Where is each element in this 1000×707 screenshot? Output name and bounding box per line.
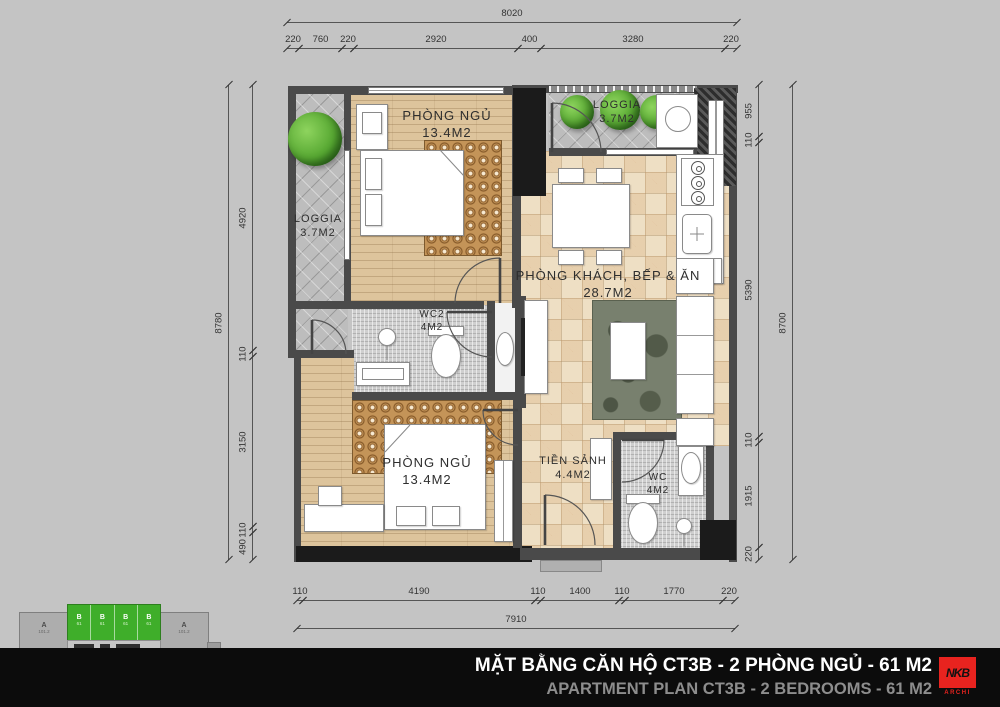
- wall: [294, 301, 484, 309]
- dimension-segment: 220: [758, 548, 759, 560]
- cabinet: [304, 504, 384, 532]
- wall: [352, 392, 522, 400]
- dimension-segment: 4190: [303, 600, 535, 601]
- wall: [513, 398, 522, 548]
- window: [344, 150, 350, 260]
- key-plan-unit-a: A 101.2: [159, 612, 209, 650]
- toilet-icon: [431, 334, 461, 378]
- bedroom2-label: PHÒNG NGỦ 13.4M2: [382, 455, 471, 489]
- sink-icon: [682, 214, 712, 254]
- dimension-segment: 5390: [758, 143, 759, 437]
- sink-icon: [496, 332, 514, 366]
- dim-label: 220: [285, 34, 301, 45]
- dim-label: 110: [614, 586, 629, 597]
- unit-sublabel: 61: [68, 621, 90, 628]
- dimension-segment: 4920: [252, 85, 253, 351]
- plan-title-english: APARTMENT PLAN CT3B - 2 BEDROOMS - 61 M2: [546, 680, 932, 699]
- wall: [700, 520, 736, 560]
- dimension-segment: 1770: [625, 600, 723, 601]
- room-area: 3.7M2: [294, 226, 342, 240]
- wc1-label: WC 4M2: [647, 471, 669, 497]
- plant-icon: [288, 112, 342, 166]
- wall: [487, 301, 495, 400]
- washing-machine-drum: [665, 106, 691, 132]
- dim-label: 4920: [238, 207, 249, 228]
- dim-label: 110: [744, 132, 755, 147]
- pillow: [365, 158, 382, 190]
- dim-label: 1915: [744, 485, 755, 506]
- bath-tray-inner: [362, 368, 404, 380]
- unit-sublabel: 101.2: [160, 629, 208, 635]
- dimension-segment: 220: [725, 48, 737, 49]
- room-name: WC2: [419, 308, 444, 321]
- dim-label: 220: [744, 546, 755, 562]
- unit-label: B: [68, 614, 90, 621]
- unit-sublabel: 61: [115, 621, 137, 628]
- unit-label: B: [138, 614, 160, 621]
- room-area: 4M2: [647, 484, 669, 497]
- dim-label: 490: [238, 539, 249, 555]
- nkb-logo: NKB: [939, 657, 976, 688]
- unit-label: B: [91, 614, 113, 621]
- wall: [613, 432, 621, 548]
- plant-icon: [560, 95, 594, 129]
- pillow: [396, 506, 426, 526]
- dining-table: [552, 184, 630, 248]
- burner-icon: [691, 176, 705, 190]
- key-plan-b-row: B61 B61 B61 B61: [67, 604, 161, 642]
- dim-label: 760: [313, 34, 329, 45]
- dim-label: 8020: [501, 8, 522, 19]
- nightstand: [362, 112, 382, 134]
- wc2-label: WC2 4M2: [419, 308, 444, 334]
- room-name: WC: [647, 471, 669, 484]
- wall: [288, 86, 352, 94]
- wall: [294, 356, 301, 562]
- dimension-segment: 1400: [541, 600, 619, 601]
- dim-label: 1400: [569, 586, 590, 597]
- loggia2-label: LOGGIA 3.7M2: [593, 98, 641, 127]
- dimension-total-left: 8780: [228, 85, 229, 560]
- tv-cabinet: [524, 300, 548, 394]
- dimension-total-right: 8700: [792, 85, 793, 560]
- floor-plan-page: 8020 220 760 220 2920 400 3280 220 110 4…: [0, 0, 1000, 707]
- unit-sublabel: 61: [91, 621, 113, 628]
- room-name: PHÒNG NGỦ: [382, 455, 471, 472]
- dimension-total-bottom: 7910: [297, 628, 735, 629]
- burner-icon: [691, 161, 705, 175]
- dim-label: 4190: [408, 586, 429, 597]
- dimension-segment: 3280: [541, 48, 725, 49]
- wall: [296, 546, 532, 562]
- room-name: LOGGIA: [294, 212, 342, 226]
- key-plan-unit-b: B61: [138, 605, 160, 641]
- key-plan-unit-a: A 101.2: [19, 612, 69, 650]
- unit-label: B: [115, 614, 137, 621]
- chair: [558, 250, 584, 265]
- unit-label: A: [20, 622, 68, 629]
- dim-label: 3150: [238, 431, 249, 452]
- dim-label: 8700: [778, 312, 789, 333]
- room-name: PHÒNG KHÁCH, BẾP & ĂN: [516, 268, 701, 285]
- room-name: LOGGIA: [593, 98, 641, 112]
- room-name: TIỀN SẢNH: [539, 454, 607, 468]
- plan-title-vietnamese: MẶT BẰNG CĂN HỘ CT3B - 2 PHÒNG NGỦ - 61 …: [475, 655, 932, 677]
- room-name: PHÒNG NGỦ: [402, 108, 491, 125]
- dim-label: 220: [723, 34, 739, 45]
- coffee-table: [610, 322, 646, 380]
- room-area: 28.7M2: [516, 285, 701, 302]
- room-area: 3.7M2: [593, 112, 641, 126]
- dimension-segment: 2920: [354, 48, 518, 49]
- tv-icon: [521, 318, 525, 376]
- toilet-icon: [628, 502, 658, 544]
- dimension-total-top: 8020: [287, 22, 737, 23]
- window: [708, 100, 724, 162]
- dim-label: 220: [721, 586, 737, 597]
- chair: [596, 168, 622, 183]
- shaft: [513, 88, 546, 196]
- dim-label: 110: [292, 586, 307, 597]
- key-plan-unit-b: B61: [68, 605, 91, 641]
- room-area: 13.4M2: [402, 125, 491, 142]
- nightstand: [318, 486, 342, 506]
- dimension-segment: 400: [518, 48, 541, 49]
- chair: [596, 250, 622, 265]
- wardrobe: [494, 460, 513, 542]
- chair: [558, 168, 584, 183]
- dimension-segment: 760: [299, 48, 342, 49]
- unit-label: A: [160, 622, 208, 629]
- burner-icon: [691, 191, 705, 205]
- sink-icon: [681, 452, 701, 484]
- dim-label: 110: [238, 346, 249, 361]
- shower-icon: [676, 518, 692, 534]
- key-plan-unit-b: B61: [91, 605, 114, 641]
- dimension-segment: 3150: [252, 357, 253, 527]
- dim-label: 7910: [505, 614, 526, 625]
- dim-label: 110: [238, 522, 249, 537]
- dim-label: 220: [340, 34, 356, 45]
- unit-sublabel: 101.2: [20, 629, 68, 635]
- shower-icon: [378, 328, 396, 346]
- loggia1-label: LOGGIA 3.7M2: [294, 212, 342, 241]
- dim-label: 2920: [425, 34, 446, 45]
- room-area: 4M2: [419, 321, 444, 334]
- dim-label: 1770: [663, 586, 684, 597]
- nkb-logo-sub: ARCHI: [939, 690, 976, 696]
- room-area: 4.4M2: [539, 468, 607, 482]
- window: [368, 87, 504, 94]
- pillow: [365, 194, 382, 226]
- dimension-segment: 1915: [758, 443, 759, 548]
- dim-label: 8780: [214, 312, 225, 333]
- title-bar: MẶT BẰNG CĂN HỘ CT3B - 2 PHÒNG NGỦ - 61 …: [0, 648, 1000, 707]
- dim-label: 955: [744, 103, 755, 119]
- dim-label: 5390: [744, 279, 755, 300]
- bedroom1-label: PHÒNG NGỦ 13.4M2: [402, 108, 491, 142]
- dim-label: 3280: [622, 34, 643, 45]
- room-area: 13.4M2: [382, 472, 471, 489]
- dim-label: 110: [744, 432, 755, 447]
- hall-label: TIỀN SẢNH 4.4M2: [539, 454, 607, 483]
- dimension-segment: 220: [723, 600, 735, 601]
- pillow: [432, 506, 460, 526]
- sofa: [676, 296, 714, 414]
- unit-sublabel: 61: [138, 621, 160, 628]
- dim-label: 110: [530, 586, 545, 597]
- entry-step: [540, 560, 602, 572]
- dim-label: 400: [522, 34, 538, 45]
- end-table: [676, 418, 714, 446]
- dimension-segment: 490: [252, 533, 253, 560]
- key-plan-unit-b: B61: [115, 605, 138, 641]
- living-label: PHÒNG KHÁCH, BẾP & ĂN 28.7M2: [516, 268, 701, 302]
- dimension-segment: 955: [758, 85, 759, 137]
